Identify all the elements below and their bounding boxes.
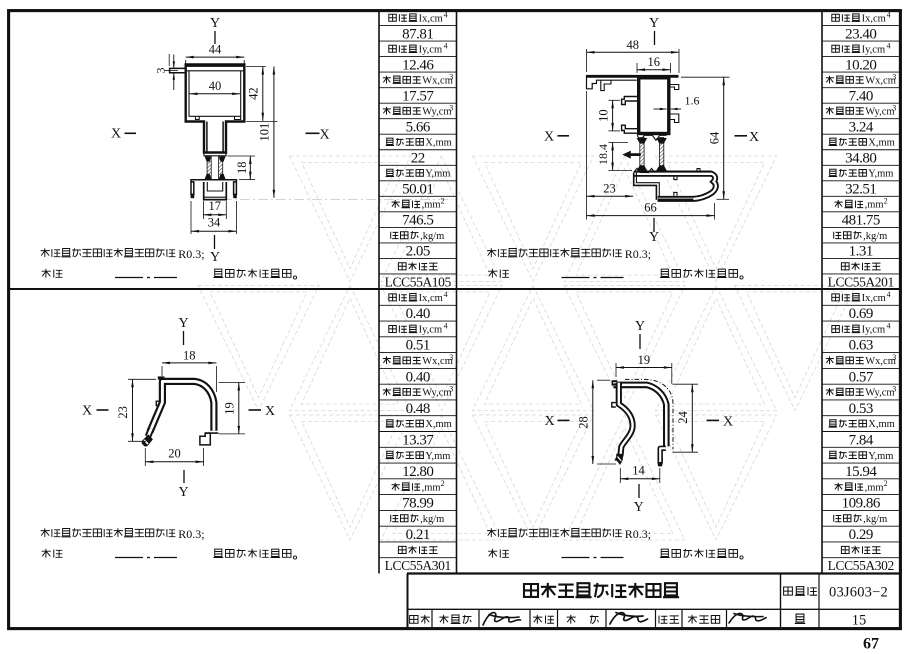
svg-text:19: 19 [638,353,651,367]
svg-text:67: 67 [863,636,879,653]
svg-text:R0.3;: R0.3; [178,527,204,541]
svg-text:32.51: 32.51 [845,182,876,198]
svg-text:R0.3;: R0.3; [625,247,651,261]
svg-text:13.37: 13.37 [402,432,434,448]
svg-text:,mm: ,mm [865,482,884,493]
svg-text:3: 3 [449,385,453,394]
svg-text:Y: Y [649,16,659,31]
svg-text:X,mm: X,mm [425,419,452,430]
svg-text:0.57: 0.57 [849,369,874,385]
svg-text:LCC55A201: LCC55A201 [828,274,894,289]
svg-text:18.4: 18.4 [596,144,610,165]
svg-text:12.46: 12.46 [402,57,434,73]
svg-text:Y: Y [210,16,220,31]
svg-text:Y: Y [634,500,644,515]
svg-text:3: 3 [449,353,453,362]
svg-text:28: 28 [577,416,591,429]
svg-text:03J603−2: 03J603−2 [829,585,888,601]
svg-text:4: 4 [887,290,891,299]
svg-text:Wy,cm: Wy,cm [422,388,451,399]
svg-text:3: 3 [154,68,168,74]
svg-text:14: 14 [632,464,645,478]
svg-text:Y: Y [178,316,188,331]
svg-text:5.66: 5.66 [406,119,431,135]
svg-text:24: 24 [676,411,690,424]
svg-text:12.80: 12.80 [402,464,433,480]
svg-text:X,mm: X,mm [868,419,895,430]
svg-text:7.40: 7.40 [849,88,873,104]
svg-text:Y,mm: Y,mm [868,169,893,180]
svg-text:3: 3 [892,353,896,362]
svg-text:23.40: 23.40 [845,26,876,42]
svg-text:2: 2 [441,479,445,488]
svg-text:7.84: 7.84 [849,432,874,448]
svg-text:Wy,cm: Wy,cm [422,107,451,118]
svg-text:0.51: 0.51 [406,338,430,354]
svg-text:2: 2 [441,197,445,206]
svg-text:19: 19 [222,402,236,415]
svg-text:3: 3 [449,72,453,81]
svg-text:R0.3;: R0.3; [625,527,651,541]
svg-text:3: 3 [892,103,896,112]
svg-text:34: 34 [208,216,221,230]
svg-text:746.5: 746.5 [402,213,433,229]
svg-text:X: X [749,130,759,145]
svg-text:Iy,cm: Iy,cm [419,325,443,336]
svg-text:X: X [82,404,92,419]
svg-text:Ix,cm: Ix,cm [419,13,443,24]
svg-text:Ix,cm: Ix,cm [862,13,886,24]
svg-text:4: 4 [444,10,448,19]
svg-text:2: 2 [884,479,888,488]
svg-text:4: 4 [887,10,891,19]
svg-text:X: X [265,404,275,419]
svg-text:101: 101 [258,123,272,142]
svg-text:Ix,cm: Ix,cm [862,293,886,304]
svg-text:44: 44 [209,43,222,57]
svg-text:42: 42 [247,87,261,100]
svg-text:481.75: 481.75 [842,213,880,229]
svg-text:2: 2 [884,197,888,206]
svg-text:4: 4 [887,321,891,330]
svg-text:Y,mm: Y,mm [425,169,450,180]
svg-text:X: X [319,128,329,143]
svg-text:Y,mm: Y,mm [868,451,893,462]
svg-text:X: X [723,415,733,430]
svg-text:,kg/m: ,kg/m [863,514,887,525]
svg-text:18: 18 [235,162,249,175]
svg-text:0.69: 0.69 [849,306,873,322]
svg-text:64: 64 [707,131,721,144]
svg-text:1.6: 1.6 [685,94,700,108]
svg-text:X,mm: X,mm [425,138,452,149]
svg-text:Y: Y [178,485,188,500]
svg-text:,kg/m: ,kg/m [420,231,444,242]
svg-text:109.86: 109.86 [842,496,881,512]
svg-text:Y: Y [649,230,659,245]
svg-text:10: 10 [596,109,610,122]
svg-text:18: 18 [183,348,196,362]
svg-text:X,mm: X,mm [868,138,895,149]
svg-text:,mm: ,mm [865,200,884,211]
svg-text:Ix,cm: Ix,cm [419,293,443,304]
svg-text:LCC55A301: LCC55A301 [385,558,451,573]
svg-text:R0.3;: R0.3; [178,247,204,261]
svg-text:4: 4 [444,41,448,50]
svg-text:Iy,cm: Iy,cm [862,44,886,55]
svg-text:16: 16 [648,55,661,69]
svg-text:Wy,cm: Wy,cm [865,388,894,399]
svg-text:,mm: ,mm [422,482,441,493]
svg-text:Wy,cm: Wy,cm [865,107,894,118]
svg-text:34.80: 34.80 [845,151,876,167]
svg-text:17: 17 [209,199,222,213]
svg-text:,mm: ,mm [422,200,441,211]
svg-text:48: 48 [627,38,640,52]
svg-text:Y: Y [210,250,220,265]
svg-text:15.94: 15.94 [845,464,877,480]
svg-text:Y: Y [635,319,645,334]
svg-text:0.48: 0.48 [406,401,430,417]
svg-text:1.31: 1.31 [849,244,873,260]
svg-text:Y,mm: Y,mm [425,451,450,462]
svg-text:23: 23 [603,181,616,195]
svg-text:3: 3 [892,385,896,394]
svg-text:66: 66 [644,200,657,214]
svg-text:LCC55A302: LCC55A302 [828,558,894,573]
svg-text:2.05: 2.05 [406,244,430,260]
svg-text:87.81: 87.81 [402,26,433,42]
svg-text:40: 40 [209,79,222,93]
svg-text:20: 20 [168,446,181,460]
svg-text:3.24: 3.24 [849,119,874,135]
svg-text:Iy,cm: Iy,cm [862,325,886,336]
svg-text:X: X [544,414,554,429]
svg-text:4: 4 [444,290,448,299]
svg-text:22: 22 [411,151,425,167]
svg-text:Iy,cm: Iy,cm [419,44,443,55]
svg-text:50.01: 50.01 [402,182,433,198]
svg-text:0.53: 0.53 [849,401,873,417]
svg-text:4: 4 [887,41,891,50]
svg-text:4: 4 [444,321,448,330]
svg-text:17.57: 17.57 [402,88,434,104]
svg-text:0.40: 0.40 [406,369,430,385]
svg-text:23: 23 [116,406,130,419]
svg-text:X: X [544,130,554,145]
svg-text:3: 3 [449,103,453,112]
svg-text:0.63: 0.63 [849,338,873,354]
svg-text:10.20: 10.20 [845,57,876,73]
svg-text:,kg/m: ,kg/m [420,514,444,525]
svg-text:LCC55A105: LCC55A105 [385,274,452,289]
svg-text:15: 15 [852,613,867,629]
svg-text:,kg/m: ,kg/m [863,231,887,242]
svg-text:0.29: 0.29 [849,527,873,543]
svg-text:0.21: 0.21 [406,527,430,543]
svg-text:0.40: 0.40 [406,306,430,322]
svg-text:3: 3 [892,72,896,81]
svg-text:X: X [111,127,121,142]
svg-text:78.99: 78.99 [402,496,433,512]
